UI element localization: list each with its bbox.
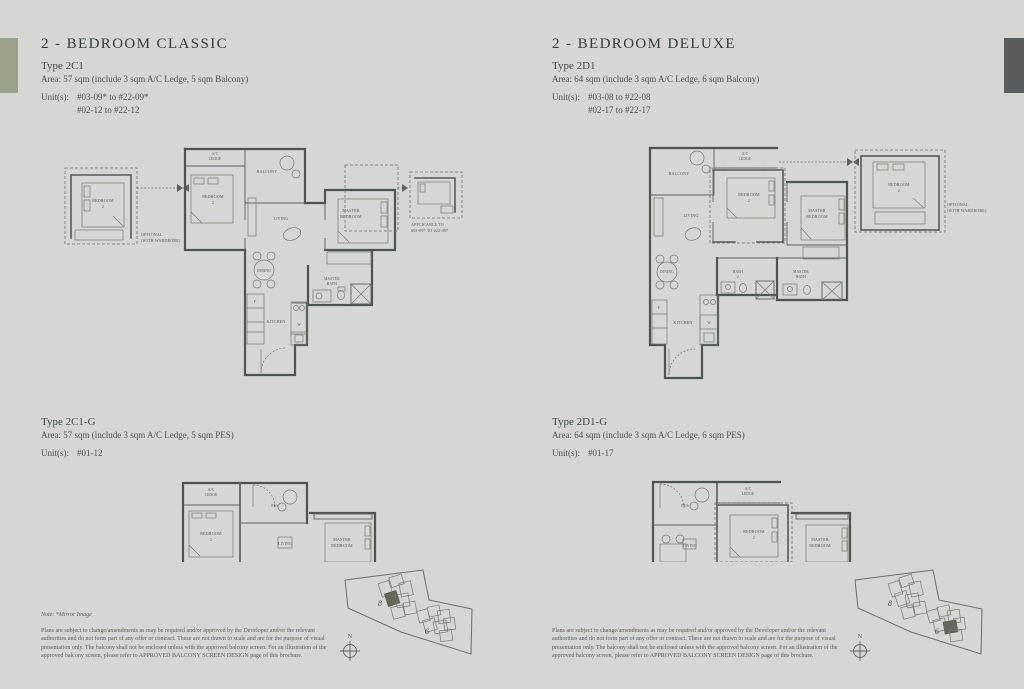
room-label-bedroom: BEDROOM bbox=[809, 543, 831, 548]
room-label-living: LIVING bbox=[278, 542, 292, 546]
room-label-bedroom-num: 2 bbox=[212, 200, 214, 205]
tower-block-6: 6 bbox=[417, 605, 456, 642]
tower-label-6: 6 bbox=[935, 626, 940, 636]
unit-range: #02-12 to #22-12 bbox=[77, 105, 149, 115]
room-label-bedroom: BEDROOM bbox=[888, 182, 910, 187]
mirror-symbol bbox=[847, 158, 859, 166]
room-label-kitchen: KITCHEN bbox=[267, 319, 286, 324]
floorplan-type-2c1: BEDROOM 2 OPTIONAL (WITH WARDROBE) A/C L… bbox=[55, 142, 465, 387]
tower-block-8: 8 bbox=[378, 574, 417, 619]
tower-label-8: 8 bbox=[378, 598, 383, 608]
walls bbox=[650, 148, 847, 378]
section-title-2-bedroom-classic: 2 - BEDROOM CLASSIC bbox=[41, 36, 228, 53]
optional-label-line2: (WITH WARDROBE) bbox=[141, 238, 181, 243]
optional-bedroom-box: BEDROOM 2 bbox=[855, 150, 945, 232]
applicable-label-line1: APPLICABLE TO bbox=[411, 222, 444, 227]
room-label-bath: BATH bbox=[796, 275, 806, 279]
master-bedroom-furniture bbox=[338, 199, 388, 243]
applicable-label-line2: #03-09* TO #22-09* bbox=[411, 228, 448, 233]
appliance-label-fridge: F bbox=[254, 300, 256, 304]
room-label-kitchen: KITCHEN bbox=[674, 320, 693, 325]
area-line: Area: 57 sqm (include 3 sqm A/C Ledge, 5… bbox=[41, 74, 371, 84]
area-line: Area: 57 sqm (include 3 sqm A/C Ledge, 5… bbox=[41, 430, 371, 440]
unit-range: #02-17 to #22-17 bbox=[588, 105, 651, 115]
units-label: Unit(s): bbox=[41, 448, 77, 461]
bath2-fixtures bbox=[721, 281, 774, 299]
room-label-bedroom: BEDROOM bbox=[743, 529, 765, 534]
room-label-ledge: LEDGE bbox=[209, 157, 222, 161]
room-label-bedroom: BEDROOM bbox=[92, 198, 114, 203]
unit-range: #03-08 to #22-08 bbox=[588, 92, 651, 102]
room-label-bedroom-num: 2 bbox=[210, 537, 212, 542]
dining-furniture bbox=[660, 535, 686, 562]
room-label-balcony: BALCONY bbox=[669, 171, 690, 176]
brochure-page: { "page": { "background": "#d6d7d4", "le… bbox=[0, 0, 1024, 689]
room-label-bedroom-num: 2 bbox=[753, 535, 755, 540]
room-label-bedroom: BEDROOM bbox=[806, 214, 828, 219]
room-label-bedroom: BEDROOM bbox=[200, 531, 222, 536]
room-label-dining: DINING bbox=[660, 270, 674, 274]
info-type-2d1-g: Type 2D1-G Area: 64 sqm (include 3 sqm A… bbox=[552, 416, 882, 461]
room-label-bedroom-num: 2 bbox=[898, 188, 900, 193]
optional-label-line1: OPTIONAL bbox=[141, 232, 163, 237]
section-title-2-bedroom-deluxe: 2 - BEDROOM DELUXE bbox=[552, 36, 736, 53]
room-label-ac: A/C bbox=[745, 487, 752, 491]
unit-range: #03-09* to #22-09* bbox=[77, 92, 149, 102]
balcony-furniture bbox=[690, 151, 710, 173]
master-bath-fixtures bbox=[313, 284, 371, 304]
master-bath-fixtures bbox=[783, 282, 842, 300]
north-compass: N bbox=[850, 634, 870, 661]
room-label-ledge: LEDGE bbox=[739, 157, 752, 161]
room-label-ac: A/C bbox=[208, 488, 215, 492]
area-line: Area: 64 sqm (include 3 sqm A/C Ledge, 6… bbox=[552, 430, 882, 440]
room-label-pes: PES bbox=[681, 503, 689, 508]
type-name: Type 2D1-G bbox=[552, 416, 882, 428]
key-plan-right: 8 6 N bbox=[843, 556, 993, 681]
applicable-detail-box bbox=[410, 172, 462, 218]
optional-bedroom-box: BEDROOM 2 bbox=[65, 168, 137, 244]
type-name: Type 2D1 bbox=[552, 60, 882, 72]
bedroom2-furniture bbox=[727, 178, 775, 218]
room-label-living: LIVING bbox=[683, 544, 697, 548]
info-type-2c1: Type 2C1 Area: 57 sqm (include 3 sqm A/C… bbox=[41, 60, 371, 118]
floorplan-type-2d1-g: PES A/C LEDGE BEDROOM 2 LIVING MASTER BE… bbox=[650, 477, 865, 562]
units-label: Unit(s): bbox=[552, 92, 588, 118]
room-label-bedroom: BEDROOM bbox=[202, 194, 224, 199]
room-label-ac: A/C bbox=[742, 152, 749, 156]
room-label-master: MASTER bbox=[793, 270, 809, 274]
appliance-label-washer: W bbox=[297, 323, 301, 327]
floorplan-type-2c1-g: A/C LEDGE BEDROOM 2 PES LIVING MASTER BE… bbox=[175, 477, 387, 562]
info-type-2d1: Type 2D1 Area: 64 sqm (include 3 sqm A/C… bbox=[552, 60, 882, 118]
type-name: Type 2C1 bbox=[41, 60, 371, 72]
unit-range: #01-17 bbox=[588, 448, 614, 458]
room-label-bedroom-num: 2 bbox=[102, 204, 104, 209]
tower-label-6: 6 bbox=[425, 626, 430, 636]
info-type-2c1-g: Type 2C1-G Area: 57 sqm (include 3 sqm A… bbox=[41, 416, 371, 461]
page-edge-tab-left bbox=[0, 38, 18, 93]
tower-block-8: 8 bbox=[888, 574, 927, 619]
tower-label-8: 8 bbox=[888, 598, 893, 608]
wardrobe bbox=[803, 247, 839, 259]
room-label-master: MASTER bbox=[808, 208, 826, 213]
unit-range: #01-12 bbox=[77, 448, 103, 458]
room-label-bedroom: BEDROOM bbox=[331, 543, 353, 548]
disclaimer-right: Plans are subject to change/amendments a… bbox=[552, 627, 852, 660]
room-label-living: LIVING bbox=[684, 213, 699, 218]
north-label: N bbox=[858, 634, 863, 640]
optional-label-line2: (WITH WARDROBE) bbox=[947, 208, 987, 213]
floorplan-type-2d1: BALCONY A/C LEDGE BEDROOM 2 MASTER BEDRO… bbox=[645, 142, 990, 387]
room-label-ac: A/C bbox=[212, 152, 219, 156]
room-label-dining: DINING bbox=[257, 269, 271, 273]
room-label-master: MASTER bbox=[324, 277, 340, 281]
mirror-region-box bbox=[710, 168, 785, 243]
appliance-label-washer: W bbox=[707, 321, 711, 325]
bedroom2-furniture bbox=[191, 175, 233, 223]
room-label-bedroom-num: 2 bbox=[748, 198, 750, 203]
type-name: Type 2C1-G bbox=[41, 416, 371, 428]
site-boundary bbox=[855, 570, 982, 654]
room-label-living: LIVING bbox=[274, 216, 289, 221]
mirror-symbol bbox=[177, 184, 189, 192]
room-label-pes: PES bbox=[271, 503, 279, 508]
optional-label-line1: OPTIONAL bbox=[947, 202, 969, 207]
living-furniture bbox=[654, 198, 703, 242]
room-label-master: MASTER bbox=[333, 537, 351, 542]
room-label-balcony: BALCONY bbox=[257, 169, 278, 174]
room-label-bedroom: BEDROOM bbox=[738, 192, 760, 197]
tower-block-6: 6 bbox=[927, 605, 966, 642]
mirror-symbol bbox=[402, 184, 408, 192]
units-label: Unit(s): bbox=[41, 92, 77, 118]
entrance-door bbox=[669, 349, 695, 375]
balcony-furniture bbox=[280, 156, 300, 178]
appliance-label-fridge: F bbox=[658, 306, 660, 310]
room-label-ledge: LEDGE bbox=[742, 492, 755, 496]
room-label-bath-num: 2 bbox=[737, 275, 739, 279]
north-label: N bbox=[348, 634, 353, 640]
room-label-bath: BATH bbox=[733, 270, 743, 274]
room-label-bath: BATH bbox=[327, 282, 337, 286]
page-edge-tab-right bbox=[1004, 38, 1024, 93]
walls bbox=[185, 149, 395, 375]
key-plan-left: 8 6 N bbox=[333, 556, 483, 681]
room-label-bedroom: BEDROOM bbox=[340, 214, 362, 219]
area-line: Area: 64 sqm (include 3 sqm A/C Ledge, 6… bbox=[552, 74, 882, 84]
room-label-master: MASTER bbox=[811, 537, 829, 542]
mirror-region-box bbox=[345, 165, 398, 231]
room-label-ledge: LEDGE bbox=[205, 493, 218, 497]
north-compass: N bbox=[340, 634, 360, 661]
mirror-image-note: Note: *Mirror Image bbox=[41, 612, 92, 618]
units-label: Unit(s): bbox=[552, 448, 588, 461]
entrance-door bbox=[261, 348, 286, 373]
wardrobe bbox=[327, 252, 371, 264]
disclaimer-left: Plans are subject to change/amendments a… bbox=[41, 627, 341, 660]
site-boundary bbox=[345, 570, 472, 654]
